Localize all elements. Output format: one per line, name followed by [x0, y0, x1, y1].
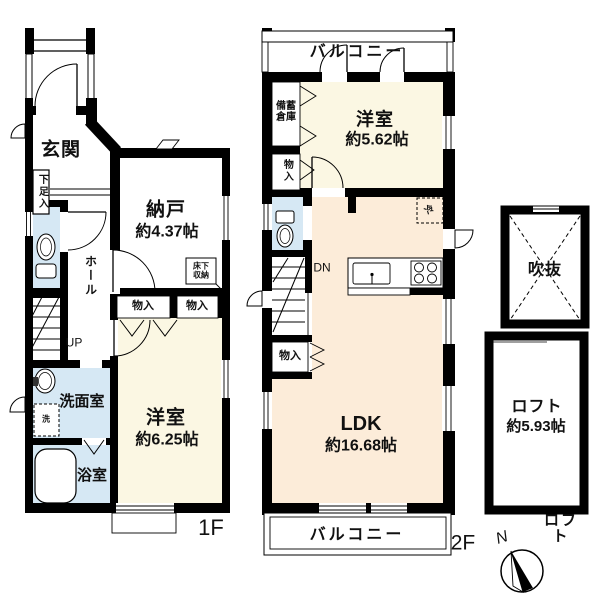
- ldk-side-door-swing: [455, 230, 473, 248]
- loft-size-label: 約5.93帖: [506, 419, 565, 435]
- stock-storage-label: 備蓄 倉庫: [276, 102, 296, 124]
- void-window: [533, 202, 559, 212]
- closet-2f-upper-label: 物入: [281, 159, 292, 183]
- toilet-2f-fixture: [276, 211, 294, 247]
- bedroom-2f-label: 洋室: [356, 110, 394, 129]
- ldk-size: 約16.68帖: [325, 437, 397, 454]
- stairs-down-label: DN: [313, 262, 330, 275]
- balcony-bottom-label: バルコニー: [310, 526, 405, 543]
- stove: [411, 261, 441, 285]
- washroom-side-door-swing: [10, 397, 25, 412]
- bedroom-1f-size: 約6.25帖: [135, 431, 198, 448]
- closet-2f-lower-label: 物入: [279, 351, 301, 363]
- stairs-2f: [272, 258, 308, 335]
- washroom-label: 洗面室: [59, 394, 104, 410]
- floor2-label: 2F: [451, 533, 476, 556]
- balcony-top-label: バルコニー: [310, 43, 405, 60]
- entrance-door: [35, 64, 77, 106]
- high-window-marker: [156, 140, 179, 149]
- bathtub: [35, 449, 76, 503]
- closet-1f-right-label: 物入: [186, 301, 208, 313]
- storage-room-size: 約4.37帖: [135, 223, 198, 240]
- washer-symbol: 洗: [42, 416, 50, 425]
- compass: [501, 550, 543, 592]
- ldk-label: LDK: [340, 414, 381, 436]
- closet-1f-left-label: 物入: [132, 301, 154, 313]
- floor-plan-drawing: [0, 0, 600, 600]
- terrace-step: [112, 513, 176, 533]
- storage-room-label: 納戸: [146, 201, 186, 222]
- bedroom-2f-size: 約5.62帖: [345, 131, 408, 148]
- bedroom-1f-label: 洋室: [146, 409, 186, 430]
- floor-plan-image: 玄関 下足入 納戸 約4.37帖 床下 収納 ホール UP 物入 物入 洗面室 …: [0, 0, 600, 600]
- underfloor-storage-label: 床下 収納: [193, 262, 209, 279]
- bathroom-label: 浴室: [77, 468, 107, 484]
- entrance-side-door-swing: [11, 124, 25, 138]
- loft-name-label: ロフト: [511, 398, 562, 415]
- toilet-1f-fixture: [36, 234, 56, 278]
- stair-side-door-swing: [247, 291, 262, 306]
- porch: [25, 28, 97, 114]
- entrance-diagonal-wall: [89, 121, 117, 151]
- hall-label: ホール: [84, 255, 97, 297]
- floor1-plan: [10, 28, 231, 533]
- loft-caption: ロフト: [542, 513, 581, 545]
- loft-plan: [489, 202, 585, 510]
- floor1-label: 1F: [198, 516, 224, 540]
- shoe-cabinet-label: 下足入: [36, 174, 47, 210]
- void-label: 吹抜: [528, 261, 562, 278]
- entrance-label: 玄関: [41, 141, 81, 162]
- toilet-1f-door: [68, 212, 106, 250]
- stairs-up-label: UP: [66, 337, 83, 350]
